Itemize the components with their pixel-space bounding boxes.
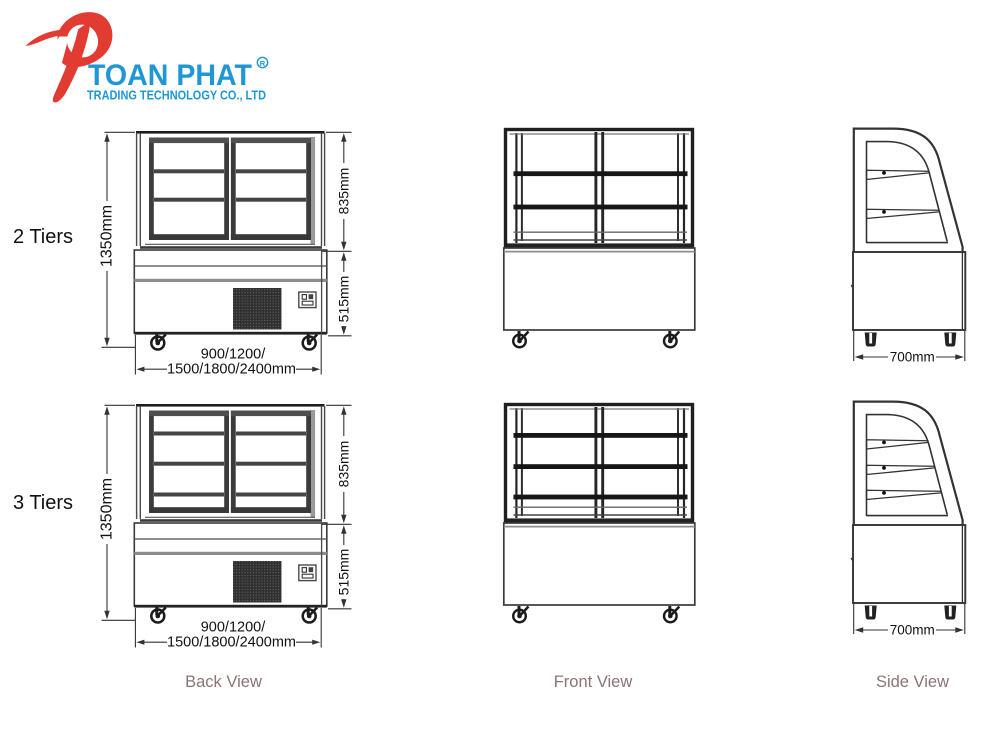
svg-text:835mm: 835mm [336,168,352,215]
svg-text:3 Tiers: 3 Tiers [13,492,73,514]
svg-text:700mm: 700mm [890,350,935,365]
svg-text:2 Tiers: 2 Tiers [13,226,73,248]
svg-text:TOAN PHAT: TOAN PHAT [88,59,252,92]
svg-text:900/1200/: 900/1200/ [201,619,266,635]
svg-text:1500/1800/2400mm: 1500/1800/2400mm [167,361,296,377]
svg-text:515mm: 515mm [336,549,352,596]
svg-text:R: R [260,59,266,68]
svg-text:900/1200/: 900/1200/ [201,346,266,362]
svg-text:700mm: 700mm [890,623,935,638]
svg-text:1350mm: 1350mm [99,205,116,267]
svg-text:1350mm: 1350mm [99,478,116,540]
svg-text:835mm: 835mm [336,441,352,488]
svg-text:TRADING TECHNOLOGY CO., LTD: TRADING TECHNOLOGY CO., LTD [87,89,266,103]
svg-text:515mm: 515mm [336,276,352,323]
svg-text:Front View: Front View [554,673,633,691]
svg-text:1500/1800/2400mm: 1500/1800/2400mm [167,634,296,650]
svg-text:Back View: Back View [185,673,262,691]
svg-text:Side View: Side View [876,673,949,691]
